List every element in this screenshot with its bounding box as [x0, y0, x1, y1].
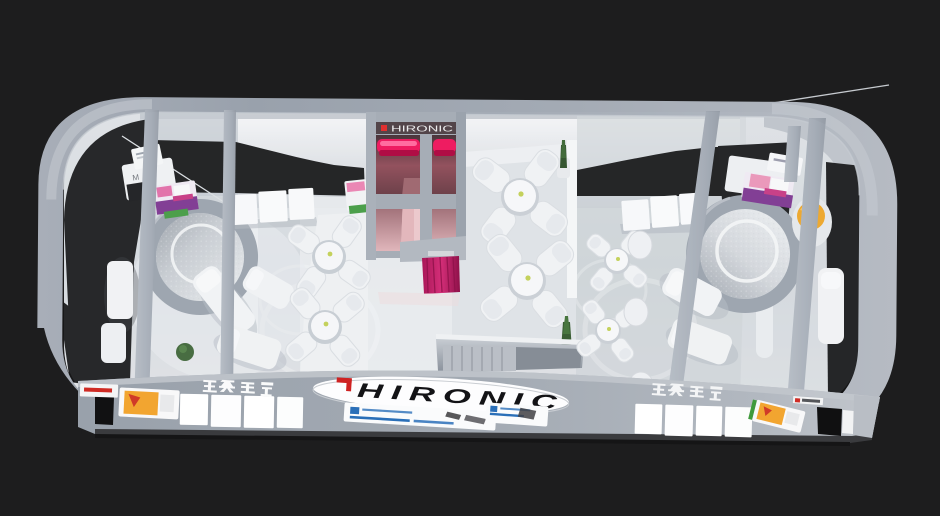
- svg-text:HIRONIC: HIRONIC: [391, 125, 453, 134]
